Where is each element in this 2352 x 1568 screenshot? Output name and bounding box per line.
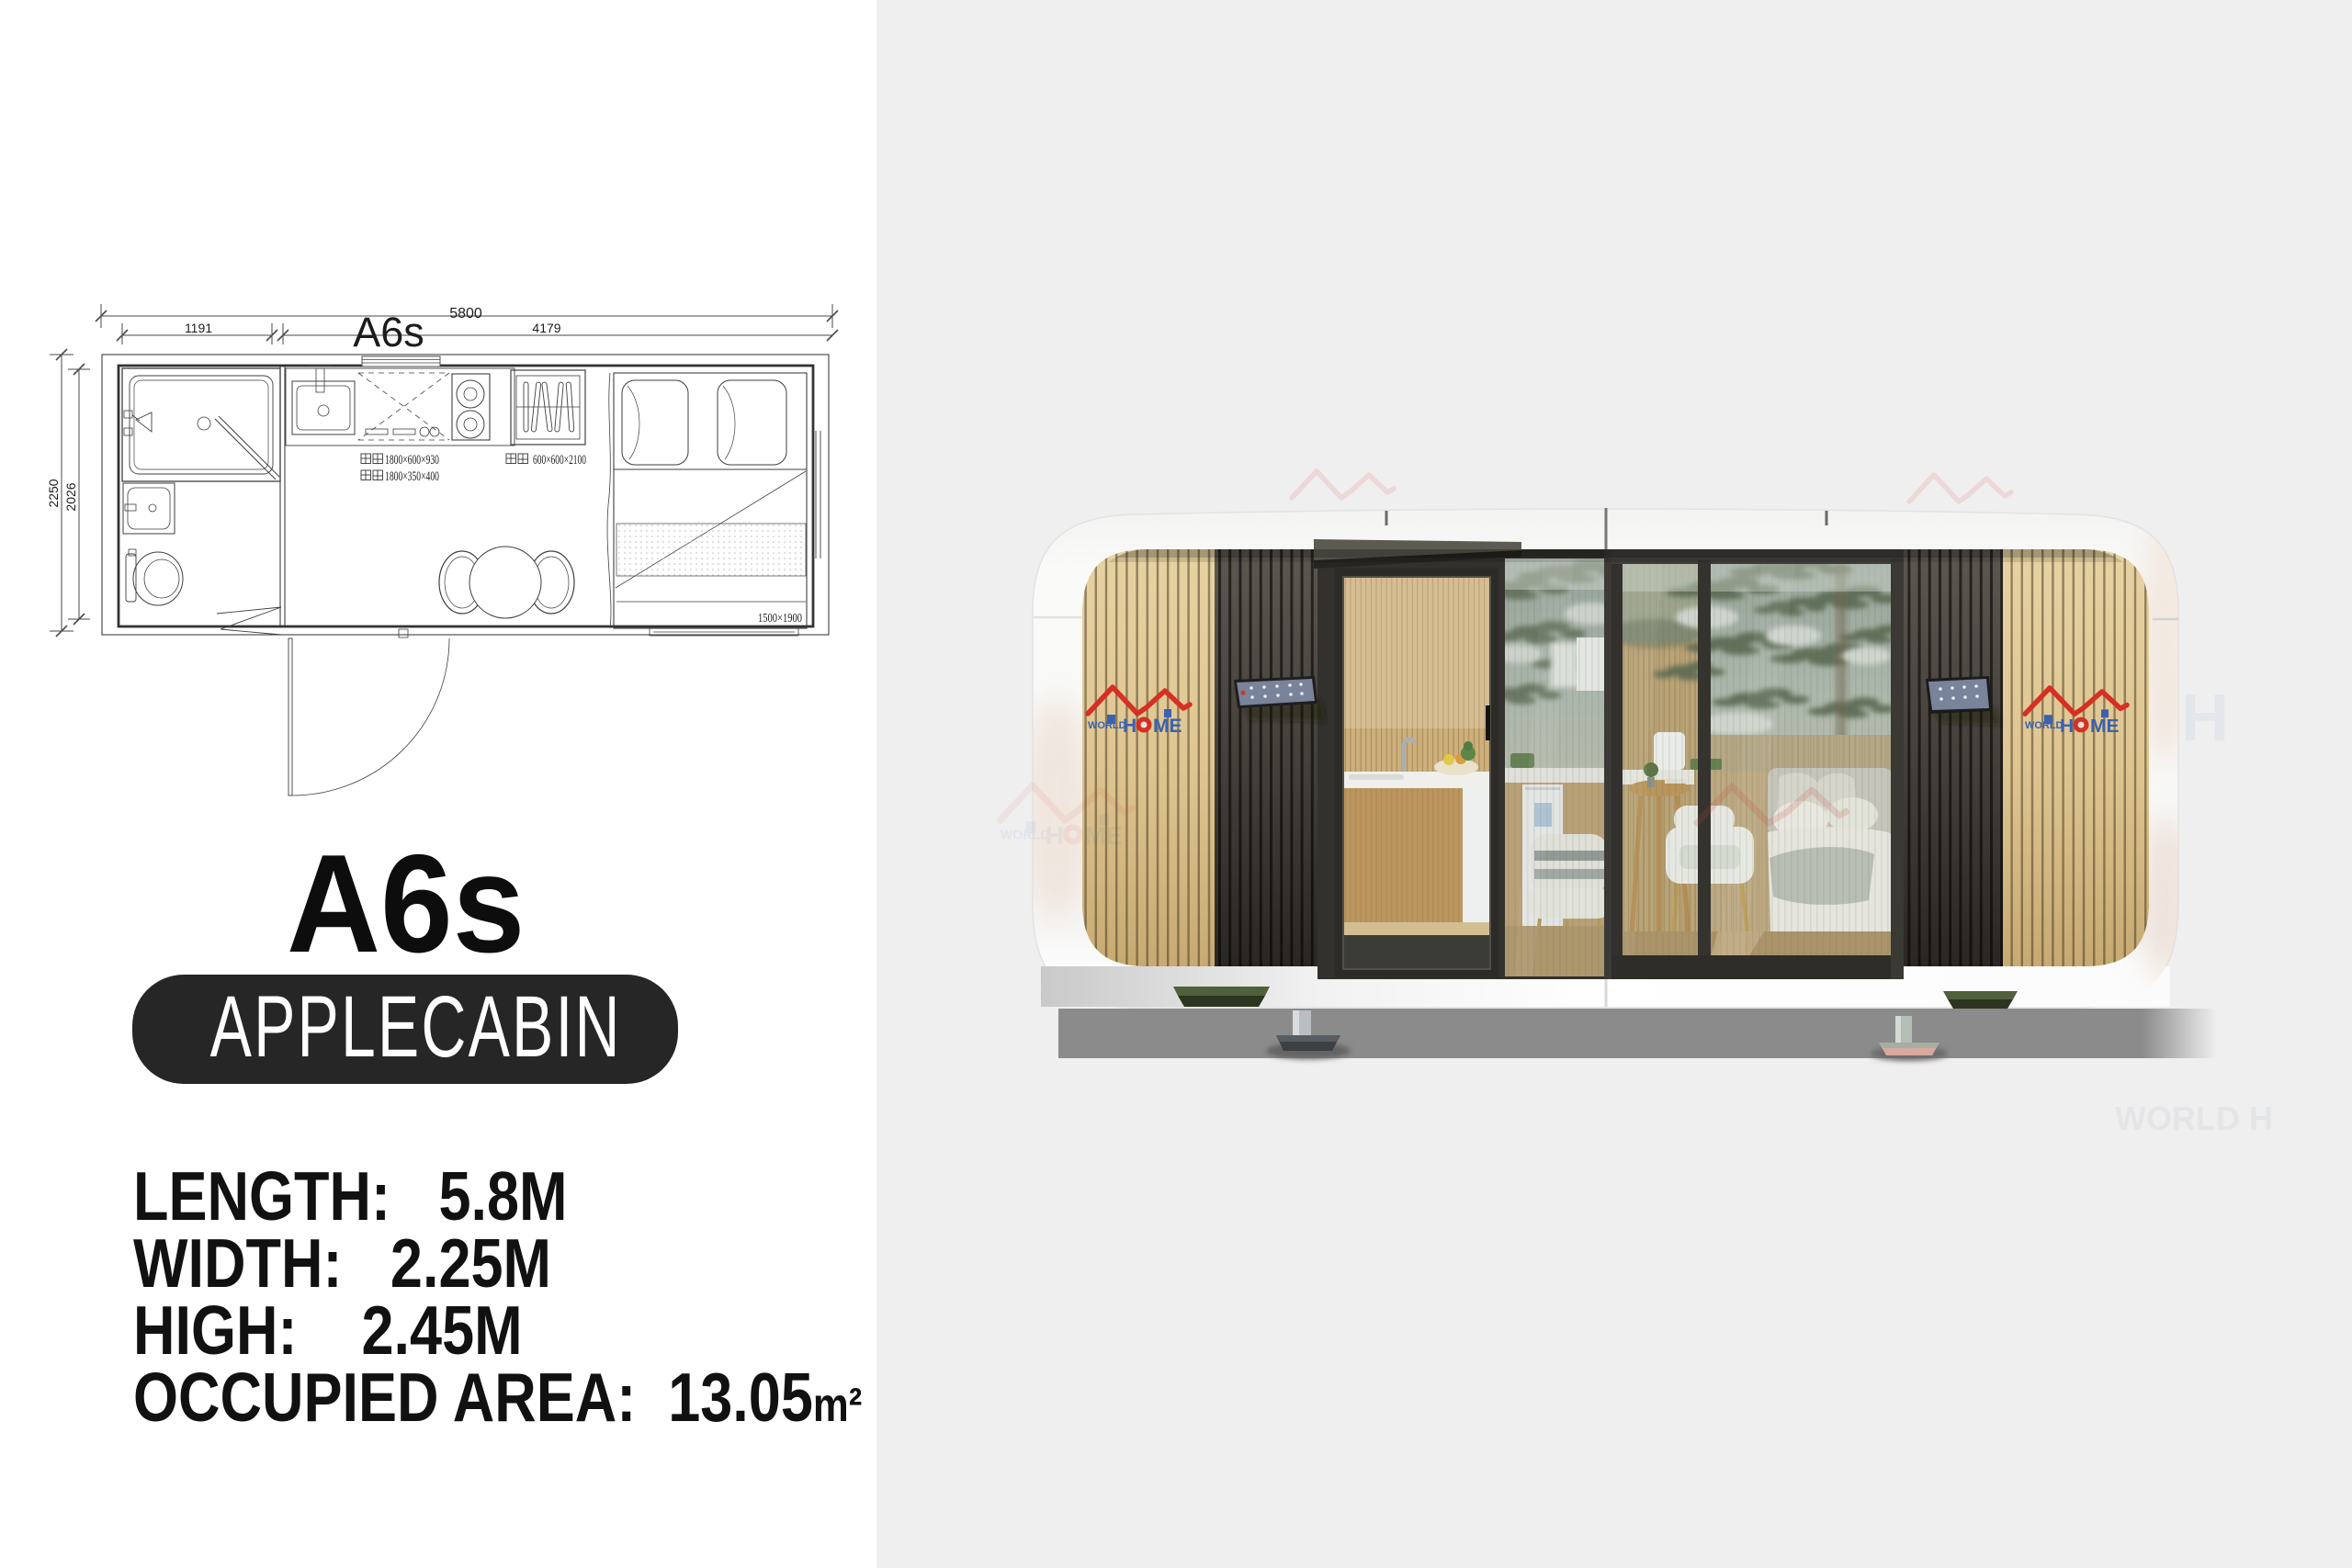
svg-text:H: H: [2181, 682, 2229, 755]
svg-text:WORLD H: WORLD H: [2115, 1100, 2273, 1137]
